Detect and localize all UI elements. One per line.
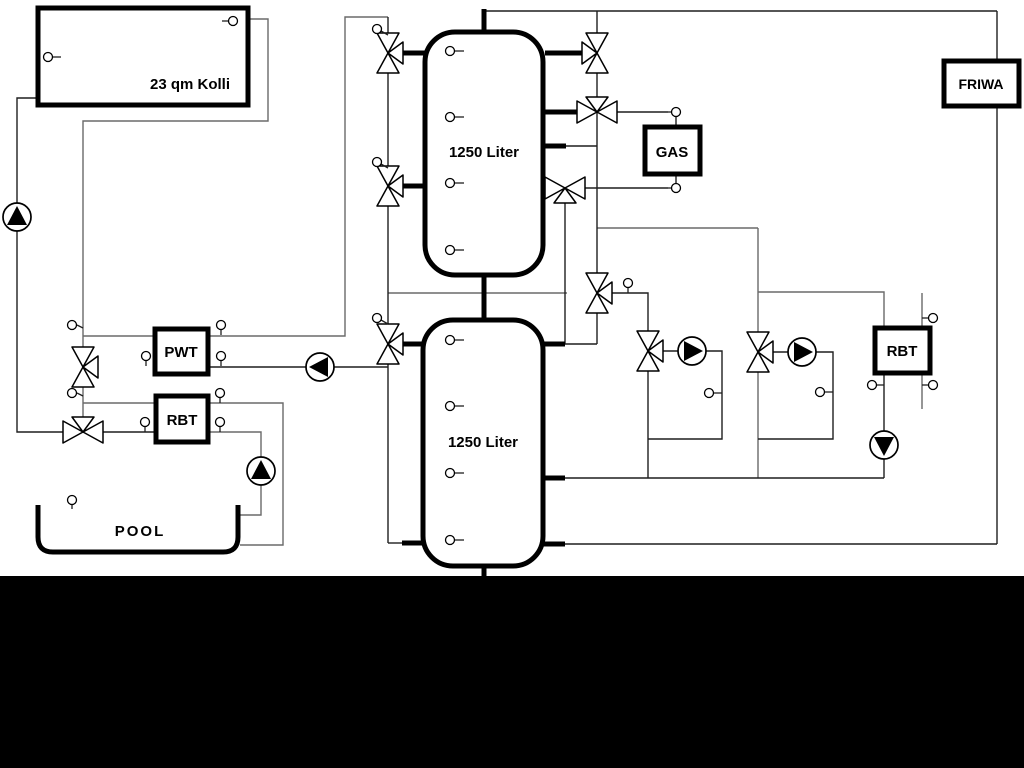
tank2-label: 1250 Liter — [448, 434, 518, 451]
pwt-box: PWT — [155, 329, 208, 374]
pump-icon — [678, 337, 706, 365]
pump-icon — [306, 353, 334, 381]
tank1-label: 1250 Liter — [449, 144, 519, 161]
buffer-tank-bottom: 1250 Liter — [423, 320, 543, 566]
rbt-right-label: RBT — [887, 343, 918, 360]
bottom-black-bar — [0, 576, 1024, 768]
gas-label: GAS — [656, 144, 689, 161]
rbt-right-box: RBT — [875, 328, 930, 373]
rbt-pool-box: RBT — [156, 396, 208, 442]
pump-icon — [3, 203, 31, 231]
pump-icon — [247, 457, 275, 485]
collector-box: 23 qm Kolli — [38, 8, 248, 105]
pump-icon — [788, 338, 816, 366]
friwa-box: FRIWA — [944, 61, 1019, 106]
hydraulic-diagram: 23 qm Kolli 1250 Liter 1250 Liter PWT RB… — [0, 0, 1024, 576]
rbt-pool-label: RBT — [167, 412, 198, 429]
hydraulic-schematic-page: 23 qm Kolli 1250 Liter 1250 Liter PWT RB… — [0, 0, 1024, 768]
pwt-label: PWT — [164, 344, 197, 361]
pump-icon — [870, 431, 898, 459]
buffer-tank-top: 1250 Liter — [425, 32, 543, 275]
pool-label: POOL — [115, 523, 166, 540]
friwa-label: FRIWA — [958, 76, 1003, 92]
gas-boiler-box: GAS — [645, 127, 700, 174]
collector-label: 23 qm Kolli — [150, 76, 230, 93]
